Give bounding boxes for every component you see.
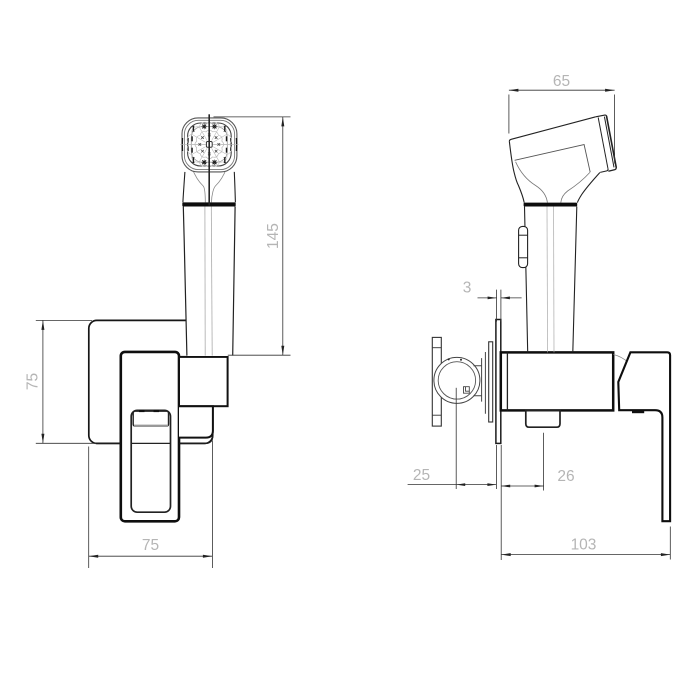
svg-text:145: 145 <box>265 223 282 249</box>
svg-text:75: 75 <box>142 537 159 554</box>
svg-text:26: 26 <box>557 468 574 485</box>
svg-text:103: 103 <box>571 537 597 554</box>
svg-text:75: 75 <box>24 373 41 390</box>
svg-text:65: 65 <box>553 73 570 90</box>
svg-text:25: 25 <box>413 467 430 484</box>
svg-text:3: 3 <box>463 280 472 297</box>
